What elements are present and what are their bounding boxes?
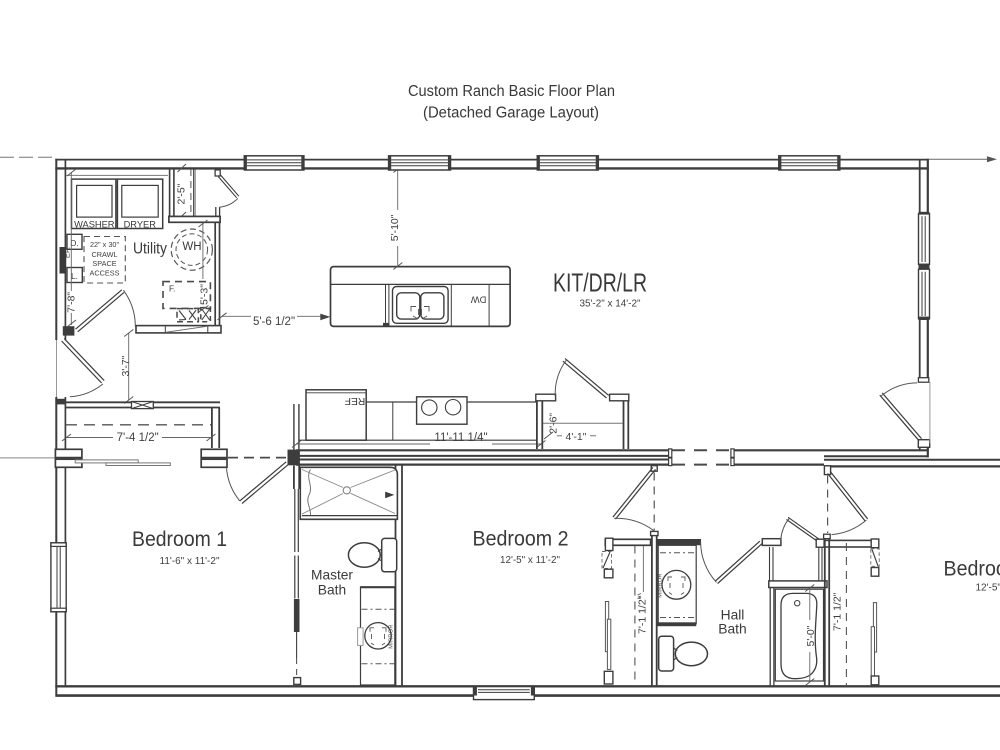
svg-text:Bedroom 2: Bedroom 2 (473, 527, 569, 551)
svg-text:WH: WH (182, 241, 201, 253)
svg-text:Custom Ranch Basic Floor Plan: Custom Ranch Basic Floor Plan (408, 83, 615, 100)
svg-text:(Detached Garage Layout): (Detached Garage Layout) (423, 105, 599, 122)
svg-text:5'-6 1/2": 5'-6 1/2" (253, 316, 295, 328)
svg-text:CRAWL: CRAWL (91, 250, 117, 259)
svg-text:7'-1 1/2": 7'-1 1/2" (636, 595, 648, 634)
svg-text:Utility: Utility (133, 240, 167, 257)
svg-text:2'-5": 2'-5" (176, 183, 188, 204)
svg-text:7'-8": 7'-8" (65, 292, 77, 313)
svg-text:KIT/DR/LR: KIT/DR/LR (553, 268, 647, 298)
svg-text:EP.: EP. (63, 247, 72, 258)
svg-text:3'-7": 3'-7" (120, 355, 132, 376)
svg-text:7'-1 1/2": 7'-1 1/2" (831, 592, 843, 631)
svg-text:12'-5" x 11'-2": 12'-5" x 11'-2" (500, 555, 560, 566)
svg-text:Master: Master (311, 568, 353, 583)
svg-text:MIRROR: MIRROR (389, 624, 395, 648)
svg-text:ACCESS: ACCESS (89, 269, 119, 278)
svg-text:Bedroom 3: Bedroom 3 (944, 556, 1000, 580)
svg-text:DW: DW (471, 295, 487, 305)
svg-text:WASHER: WASHER (74, 220, 115, 230)
svg-text:REF: REF (345, 395, 366, 406)
svg-text:SPACE: SPACE (92, 259, 116, 268)
svg-text:5'-10": 5'-10" (389, 214, 401, 241)
svg-text:5'-0": 5'-0" (805, 625, 817, 646)
svg-text:35'-2" x 14'-2": 35'-2" x 14'-2" (580, 299, 641, 310)
svg-text:Bath: Bath (718, 622, 746, 637)
svg-text:12'-5": 12'-5" (976, 583, 1000, 594)
svg-text:F.: F. (169, 284, 175, 294)
svg-text:22" x 30": 22" x 30" (90, 240, 120, 249)
svg-text:7'-4 1/2": 7'-4 1/2" (117, 432, 159, 444)
svg-text:4'-1": 4'-1" (566, 431, 587, 443)
svg-text:11'-6" x 11'-2": 11'-6" x 11'-2" (160, 556, 220, 567)
svg-text:DRYER: DRYER (124, 220, 157, 230)
svg-text:L.: L. (71, 271, 78, 281)
svg-text:2'-6": 2'-6" (547, 413, 559, 434)
svg-text:5'-3": 5'-3" (198, 284, 210, 305)
svg-text:Bedroom 1: Bedroom 1 (132, 527, 227, 551)
svg-text:Bath: Bath (318, 583, 346, 598)
svg-text:11'-11 1/4": 11'-11 1/4" (434, 432, 487, 444)
svg-text:MIRROR: MIRROR (657, 573, 663, 597)
svg-text:Hall: Hall (721, 608, 745, 623)
